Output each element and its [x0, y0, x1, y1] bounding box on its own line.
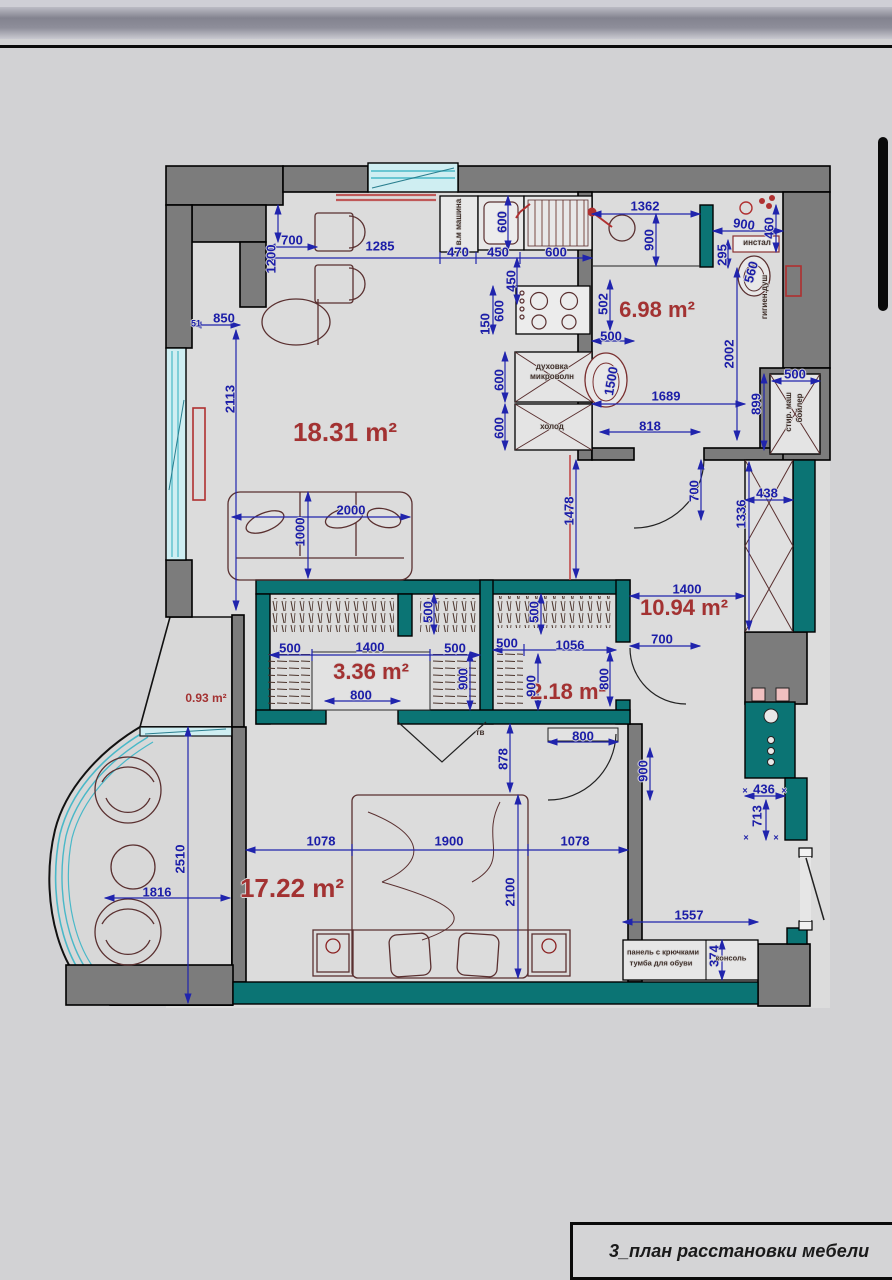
- entry-console: [623, 940, 758, 980]
- hob: [516, 286, 590, 334]
- entrance-jamb-top: [799, 848, 812, 857]
- balcony: [49, 617, 232, 1005]
- socket-2: [776, 688, 789, 701]
- toilet: [738, 256, 770, 296]
- socket-1: [752, 688, 765, 701]
- washing-machine-box: [440, 196, 478, 252]
- entrance-jamb-bottom: [799, 921, 812, 930]
- title-block: 3_план расстановки мебели: [570, 1222, 892, 1280]
- instal-box: [733, 236, 779, 252]
- kitchen-sink: [484, 202, 518, 244]
- floor-plan-svg: [0, 0, 892, 1280]
- living-window: [166, 348, 186, 560]
- scrollbar-thumb[interactable]: [878, 137, 888, 311]
- bathroom-sink: [585, 353, 627, 407]
- sheet-title: 3_план расстановки мебели: [573, 1241, 869, 1262]
- shaft-niche: [745, 460, 793, 632]
- page: 7001200128547045060060045085051211315060…: [0, 0, 892, 1280]
